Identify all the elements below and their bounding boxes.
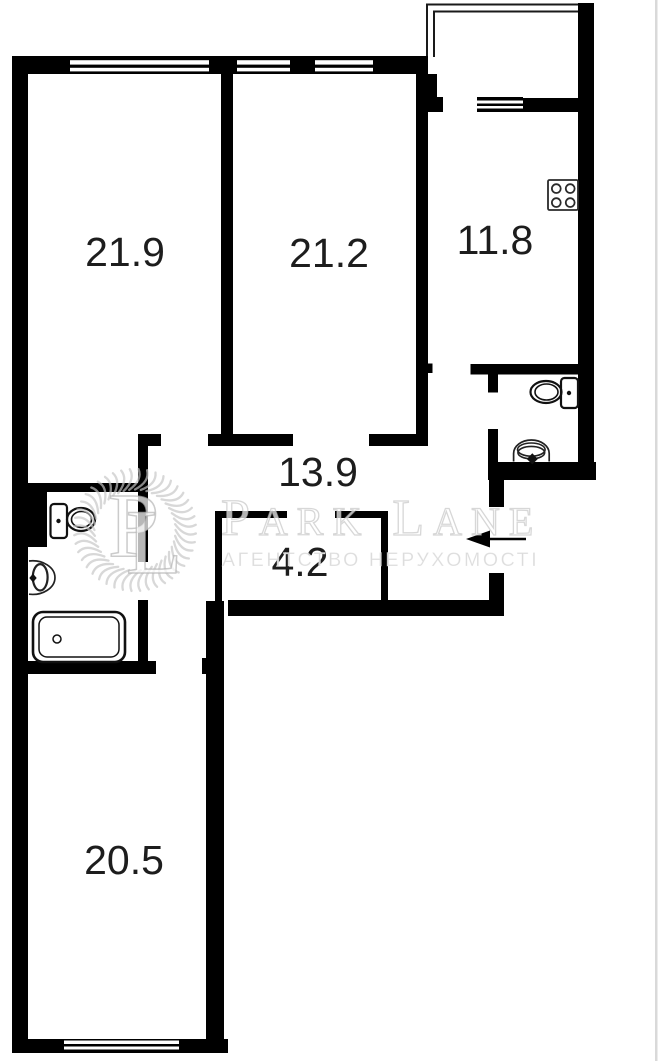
svg-text:21.9: 21.9 xyxy=(85,229,165,275)
svg-text:11.8: 11.8 xyxy=(457,217,534,263)
svg-text:L: L xyxy=(126,491,182,593)
svg-text:PARK LANE: PARK LANE xyxy=(221,490,542,547)
svg-text:20.5: 20.5 xyxy=(84,837,164,883)
svg-text:21.2: 21.2 xyxy=(289,230,369,276)
svg-text:13.9: 13.9 xyxy=(278,449,358,495)
svg-text:АГЕНТСТВО НЕРУХОМОСТІ: АГЕНТСТВО НЕРУХОМОСТІ xyxy=(222,549,539,571)
